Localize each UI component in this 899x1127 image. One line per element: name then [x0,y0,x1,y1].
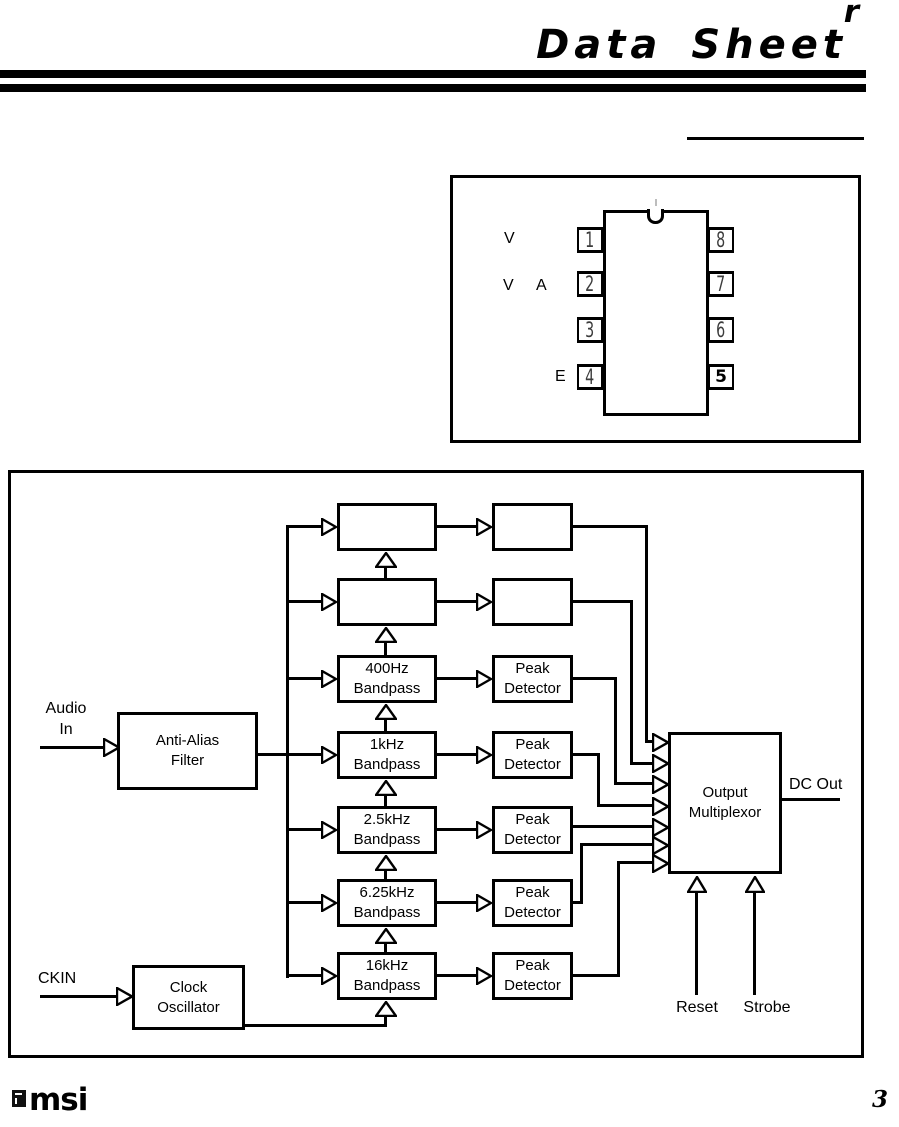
peak-detector-box: Peak Detector [492,952,573,1000]
reset-wire [695,891,698,995]
audio-in-wire [40,746,104,749]
logo-text: msi [29,1082,87,1118]
audio-bus-wire [286,525,289,978]
pin-1-number: 1 [585,228,594,252]
page-number: 3 [872,1086,888,1113]
peak-label-line1: Peak [515,735,549,755]
bp-pd-wire [437,753,477,756]
input-arrow-icon [321,821,337,839]
pd-mux-wire [573,974,620,977]
pin-4-label: E [555,368,566,386]
anti-alias-label-line1: Anti-Alias [156,731,219,751]
output-multiplexor-box: Output Multiplexor [668,732,782,874]
pd-mux-wire [573,753,600,756]
bandpass-label-line1: 16kHz [366,956,409,976]
ckin-label: CKIN [38,970,76,988]
bandpass-label-line1: 400Hz [365,659,408,679]
mux-input-arrow-icon [652,754,669,773]
clock-osc-label-line2: Oscillator [157,998,220,1018]
pd-mux-wire [580,843,583,904]
pd-mux-wire [597,753,600,807]
bus-branch-wire [287,525,322,528]
clock-cascade-wire [384,641,387,655]
peak-label-line2: Detector [504,755,561,775]
bus-branch-wire [287,600,322,603]
pin-2-label-a: V [503,277,514,295]
pd-mux-wire [645,525,648,743]
bandpass-box: 1kHz Bandpass [337,731,437,779]
bus-branch-wire [287,974,322,977]
pin-2: 2 [577,271,603,297]
pd-mux-wire [614,782,653,785]
bp-pd-wire [437,974,477,977]
clock-oscillator-box: Clock Oscillator [132,965,245,1030]
anti-alias-filter-box: Anti-Alias Filter [117,712,258,790]
bandpass-box [337,503,437,551]
peak-label-line2: Detector [504,903,561,923]
bandpass-box: 6.25kHz Bandpass [337,879,437,927]
bandpass-box: 400Hz Bandpass [337,655,437,703]
pd-mux-wire [597,804,653,807]
pd-mux-wire [580,843,653,846]
clock-cascade-wire [384,942,387,952]
pin-2-label-b: A [536,277,547,295]
peak-label-line2: Detector [504,976,561,996]
pin-7-number: 7 [716,272,725,296]
input-arrow-icon [476,518,492,536]
bandpass-label-line1: 1kHz [370,735,404,755]
pd-mux-wire [573,825,653,828]
strobe-label: Strobe [738,999,796,1017]
pin-3: 3 [577,317,603,343]
bandpass-label-line2: Bandpass [354,976,421,996]
pin-1-label: V [504,230,515,248]
bp-pd-wire [437,901,477,904]
pin-5: 5 [708,364,734,390]
peak-label-line1: Peak [515,810,549,830]
peak-detector-box: Peak Detector [492,806,573,854]
bus-branch-wire [287,901,322,904]
clock-cascade-wire [384,869,387,879]
pd-mux-wire [645,740,653,743]
chip-body [603,210,709,416]
pin-1: 1 [577,227,603,253]
pin-8-number: 8 [716,228,725,252]
input-arrow-icon [476,894,492,912]
input-arrow-icon [321,518,337,536]
clock-cascade-wire [384,566,387,578]
clock-cascade-wire [384,794,387,806]
bandpass-label-line2: Bandpass [354,903,421,923]
clock-cascade-wire [384,718,387,731]
pd-mux-wire [573,600,633,603]
bp-pd-wire [437,525,477,528]
bus-branch-wire [287,677,322,680]
peak-detector-box [492,578,573,626]
peak-label-line2: Detector [504,679,561,699]
bandpass-label-line2: Bandpass [354,755,421,775]
clock-osc-label-line1: Clock [170,978,208,998]
pin-4: 4 [577,364,603,390]
ckin-wire [40,995,117,998]
bp-pd-wire [437,677,477,680]
pd-mux-wire [573,525,648,528]
bp-pd-wire [437,600,477,603]
mux-input-arrow-icon [652,775,669,794]
input-arrow-icon [476,746,492,764]
input-arrow-icon [321,894,337,912]
anti-alias-label-line2: Filter [171,751,204,771]
audio-in-label-line2: In [40,721,92,739]
pin-4-number: 4 [585,365,594,389]
mux-input-arrow-icon [652,733,669,752]
notch-tick [655,199,657,206]
mux-label-line2: Multiplexor [689,803,762,823]
peak-label-line2: Detector [504,830,561,850]
input-arrow-icon [321,746,337,764]
bus-branch-wire [287,828,322,831]
pd-mux-wire [630,762,653,765]
reset-label: Reset [672,999,722,1017]
audio-in-label-line1: Audio [40,700,92,718]
pin-5-number: 5 [715,367,727,387]
peak-label-line1: Peak [515,956,549,976]
header-rule-bottom [0,84,866,92]
pin-7: 7 [708,271,734,297]
input-arrow-icon [476,967,492,985]
peak-detector-box: Peak Detector [492,731,573,779]
pin-3-number: 3 [585,318,594,342]
input-arrow-icon [321,593,337,611]
bandpass-label-line1: 6.25kHz [359,883,414,903]
peak-detector-box [492,503,573,551]
pd-mux-wire [614,677,617,785]
pin-8: 8 [708,227,734,253]
bp-pd-wire [437,828,477,831]
mux-input-arrow-icon [652,797,669,816]
mux-input-arrow-icon [652,854,669,873]
peak-label-line1: Peak [515,659,549,679]
dc-out-label: DC Out [789,776,842,794]
peak-detector-box: Peak Detector [492,655,573,703]
pd-mux-wire [573,677,617,680]
pd-mux-wire [617,861,653,864]
logo-mark-icon [12,1090,26,1107]
pin-6-number: 6 [716,318,725,342]
bandpass-label-line1: 2.5kHz [364,810,411,830]
datasheet-page: r Data Sheet 1 2 3 4 8 7 6 5 V V A E Aud… [0,0,899,1127]
pin-6: 6 [708,317,734,343]
bandpass-label-line2: Bandpass [354,679,421,699]
input-arrow-icon [476,593,492,611]
page-title: Data Sheet [536,22,847,68]
peak-detector-box: Peak Detector [492,879,573,927]
header-rule-top [0,70,866,78]
dc-out-wire [780,798,840,801]
mux-input-arrow-icon [652,818,669,837]
input-arrow-icon [476,670,492,688]
bandpass-label-line2: Bandpass [354,830,421,850]
input-arrow-icon [321,967,337,985]
strobe-wire [753,891,756,995]
pd-mux-wire [630,600,633,764]
peak-label-line1: Peak [515,883,549,903]
input-arrow-icon [476,821,492,839]
clock-output-wire [243,1024,387,1027]
bandpass-box: 2.5kHz Bandpass [337,806,437,854]
mux-label-line1: Output [702,783,747,803]
mux-input-arrow-icon [652,836,669,855]
bandpass-box: 16kHz Bandpass [337,952,437,1000]
pin-2-number: 2 [585,272,594,296]
input-arrow-icon [321,670,337,688]
pd-mux-wire [617,861,620,977]
part-number-underline [687,137,864,140]
pin1-notch-icon [647,209,664,224]
bandpass-box [337,578,437,626]
input-arrow-icon [116,987,133,1006]
